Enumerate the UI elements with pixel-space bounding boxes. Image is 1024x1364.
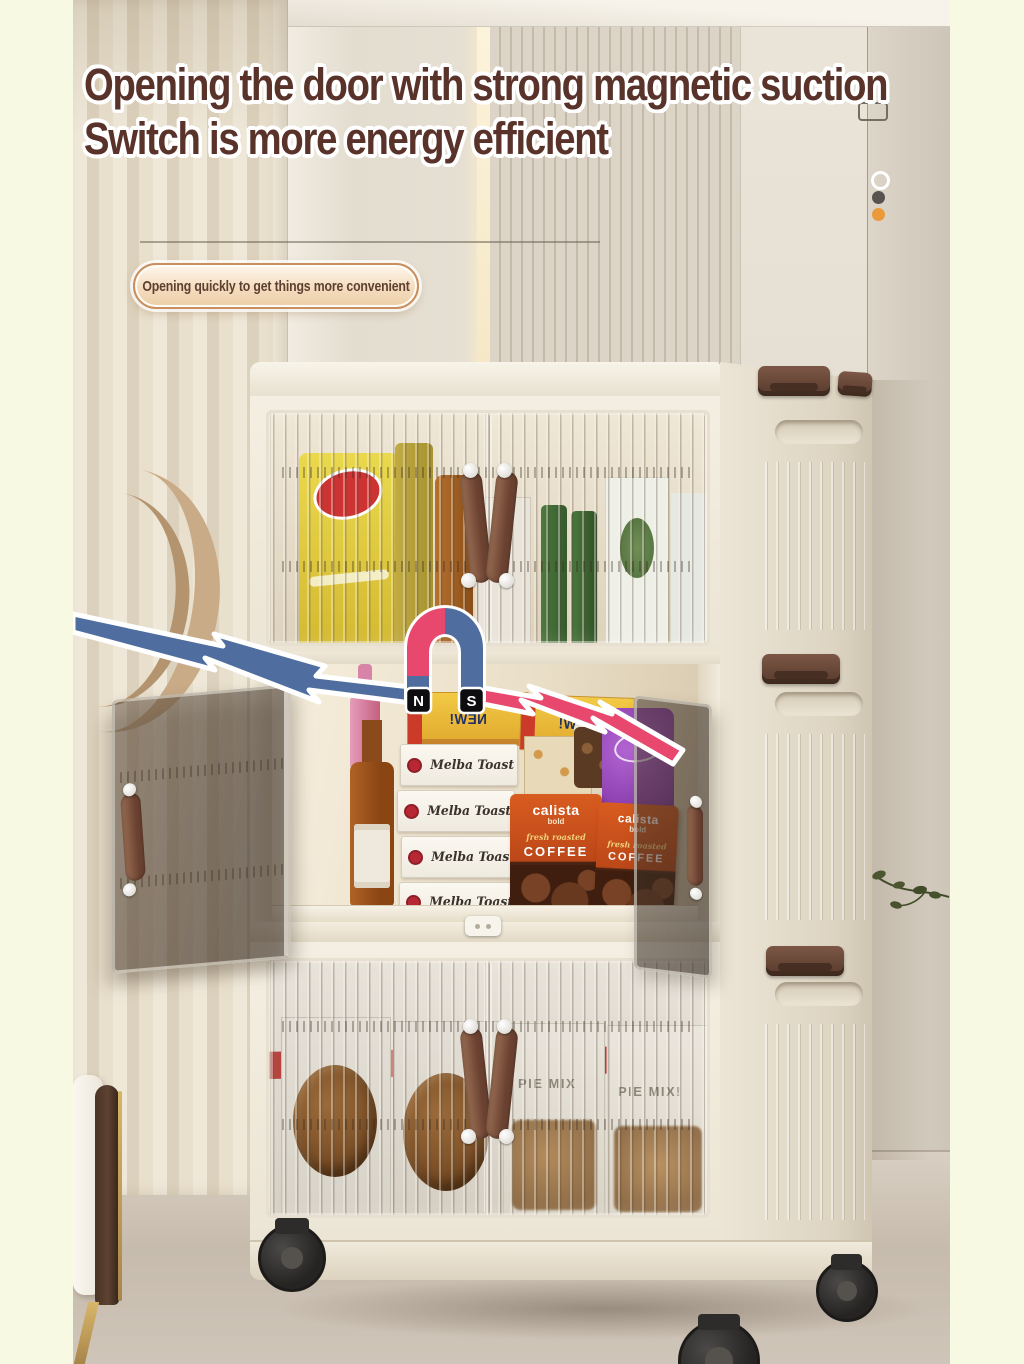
callout-text: Opening quickly to get things more conve… xyxy=(142,278,409,295)
melba-toast-box: Melba Toast xyxy=(401,836,519,878)
chair-back-frame xyxy=(95,1085,119,1305)
cabinet-side-panel xyxy=(720,362,872,1252)
wall-dot-orange xyxy=(872,208,885,221)
callout-badge: Opening quickly to get things more conve… xyxy=(133,263,419,309)
lid-fold-clip[interactable] xyxy=(758,366,830,396)
coffee-label: COFFEE xyxy=(524,844,589,859)
side-vent-ribs xyxy=(765,462,865,630)
melba-logo-dot xyxy=(408,850,423,865)
side-handle-slot[interactable] xyxy=(775,692,863,716)
tier2-fold-clip[interactable] xyxy=(762,654,840,684)
magnet-graphic: N S xyxy=(73,588,713,788)
handle-bolt xyxy=(463,463,478,478)
tier3-left-door-glass[interactable] xyxy=(269,961,492,1215)
side-vent-ribs xyxy=(765,1024,865,1220)
side-handle-slot[interactable] xyxy=(775,420,863,444)
caster-wheel[interactable] xyxy=(678,1320,760,1364)
handle-bolt xyxy=(461,573,476,588)
handle-bolt xyxy=(497,463,512,478)
lid-fold-clip[interactable] xyxy=(837,371,873,397)
cabinet-base xyxy=(250,1240,872,1280)
coffee-roast: fresh roasted xyxy=(526,832,585,842)
side-vent-ribs xyxy=(765,734,865,920)
room-scene: NEW! NEW! Melba Toast Melba Toast xyxy=(73,0,950,1364)
cabinet-wall-shadow xyxy=(872,380,950,1160)
tier-3: PIE MIX PIE MIX PIE MIX! xyxy=(250,942,720,1240)
melba-label: Melba Toast xyxy=(427,804,511,819)
melba-logo-dot xyxy=(404,804,419,819)
product-marketing-image: NEW! NEW! Melba Toast Melba Toast xyxy=(0,0,1024,1364)
handle-bolt xyxy=(123,883,136,897)
handle-bolt xyxy=(499,1129,514,1144)
tier3-window: PIE MIX PIE MIX PIE MIX! xyxy=(266,958,710,1218)
handle-bolt xyxy=(690,887,702,900)
handle-bolt xyxy=(497,1019,512,1034)
divider-line xyxy=(140,241,600,243)
door-cross-rib xyxy=(282,467,694,478)
wall-dot-ring xyxy=(871,171,890,190)
caster-wheel[interactable] xyxy=(816,1260,878,1322)
tier3-fold-clip[interactable] xyxy=(766,946,844,976)
coffee-brand: calista xyxy=(532,802,579,818)
side-handle-slot[interactable] xyxy=(775,982,863,1006)
south-pole-label: S xyxy=(466,693,476,710)
handle-bolt xyxy=(499,573,514,588)
cabinet-lid xyxy=(250,362,720,398)
melba-toast-box: Melba Toast xyxy=(397,790,515,832)
handle-bolt xyxy=(463,1019,478,1034)
headline-line1: Opening the door with strong magnetic su… xyxy=(84,58,887,112)
melba-label: Melba Toast xyxy=(431,850,515,865)
caster-wheel[interactable] xyxy=(258,1224,326,1292)
pink-lightning-bolt xyxy=(473,686,683,764)
open-door-handle[interactable] xyxy=(120,792,146,882)
bottle-label xyxy=(354,824,390,888)
headline-line2: Switch is more energy efficient xyxy=(84,112,608,166)
storage-cabinet: NEW! NEW! Melba Toast Melba Toast xyxy=(250,362,872,1364)
blue-lightning-bolt xyxy=(73,614,419,704)
magnetic-latch[interactable] xyxy=(465,916,501,936)
north-pole-label: N xyxy=(413,693,424,710)
tier3-right-door-glass[interactable] xyxy=(484,961,707,1215)
door-cross-rib xyxy=(282,1021,694,1032)
open-door-handle[interactable] xyxy=(687,805,703,887)
handle-bolt xyxy=(461,1129,476,1144)
coffee-weight: bold xyxy=(548,817,565,826)
coffee-bag: calista bold fresh roasted COFFEE xyxy=(510,794,602,916)
wall-dot-gray xyxy=(872,191,885,204)
